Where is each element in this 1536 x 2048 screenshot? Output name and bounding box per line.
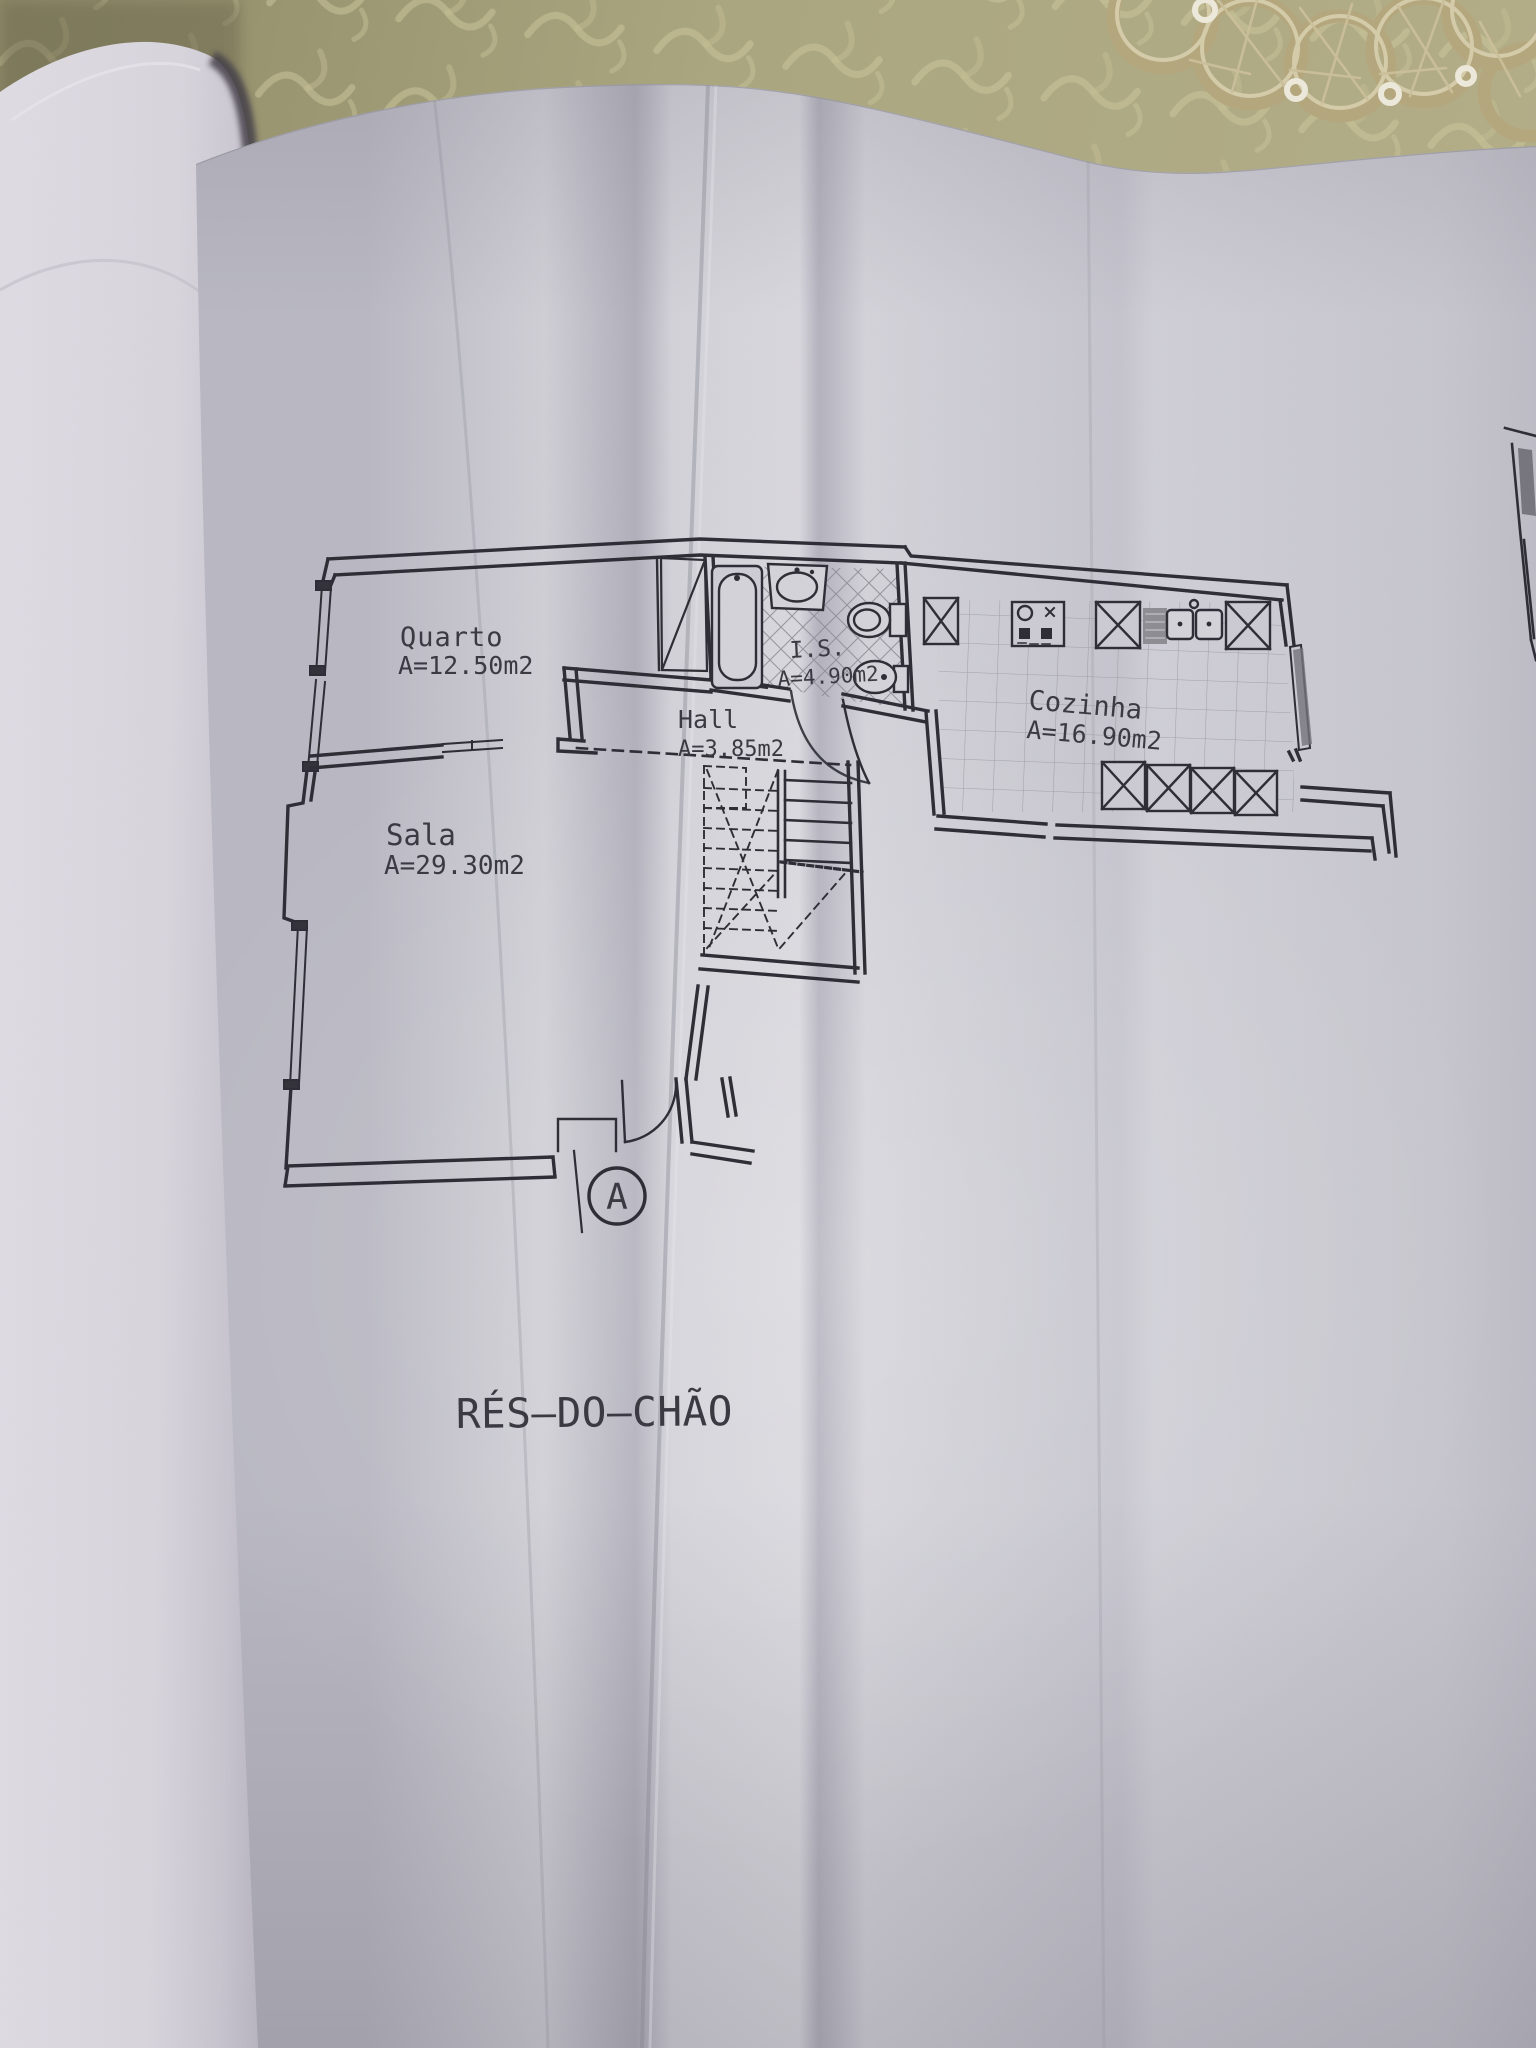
photo-of-floor-plan: Quarto A=12.50m2 I.S. A=4.90m2 Hall A=3.… <box>0 0 1536 2048</box>
photo-grain-overlay <box>0 0 1536 2048</box>
